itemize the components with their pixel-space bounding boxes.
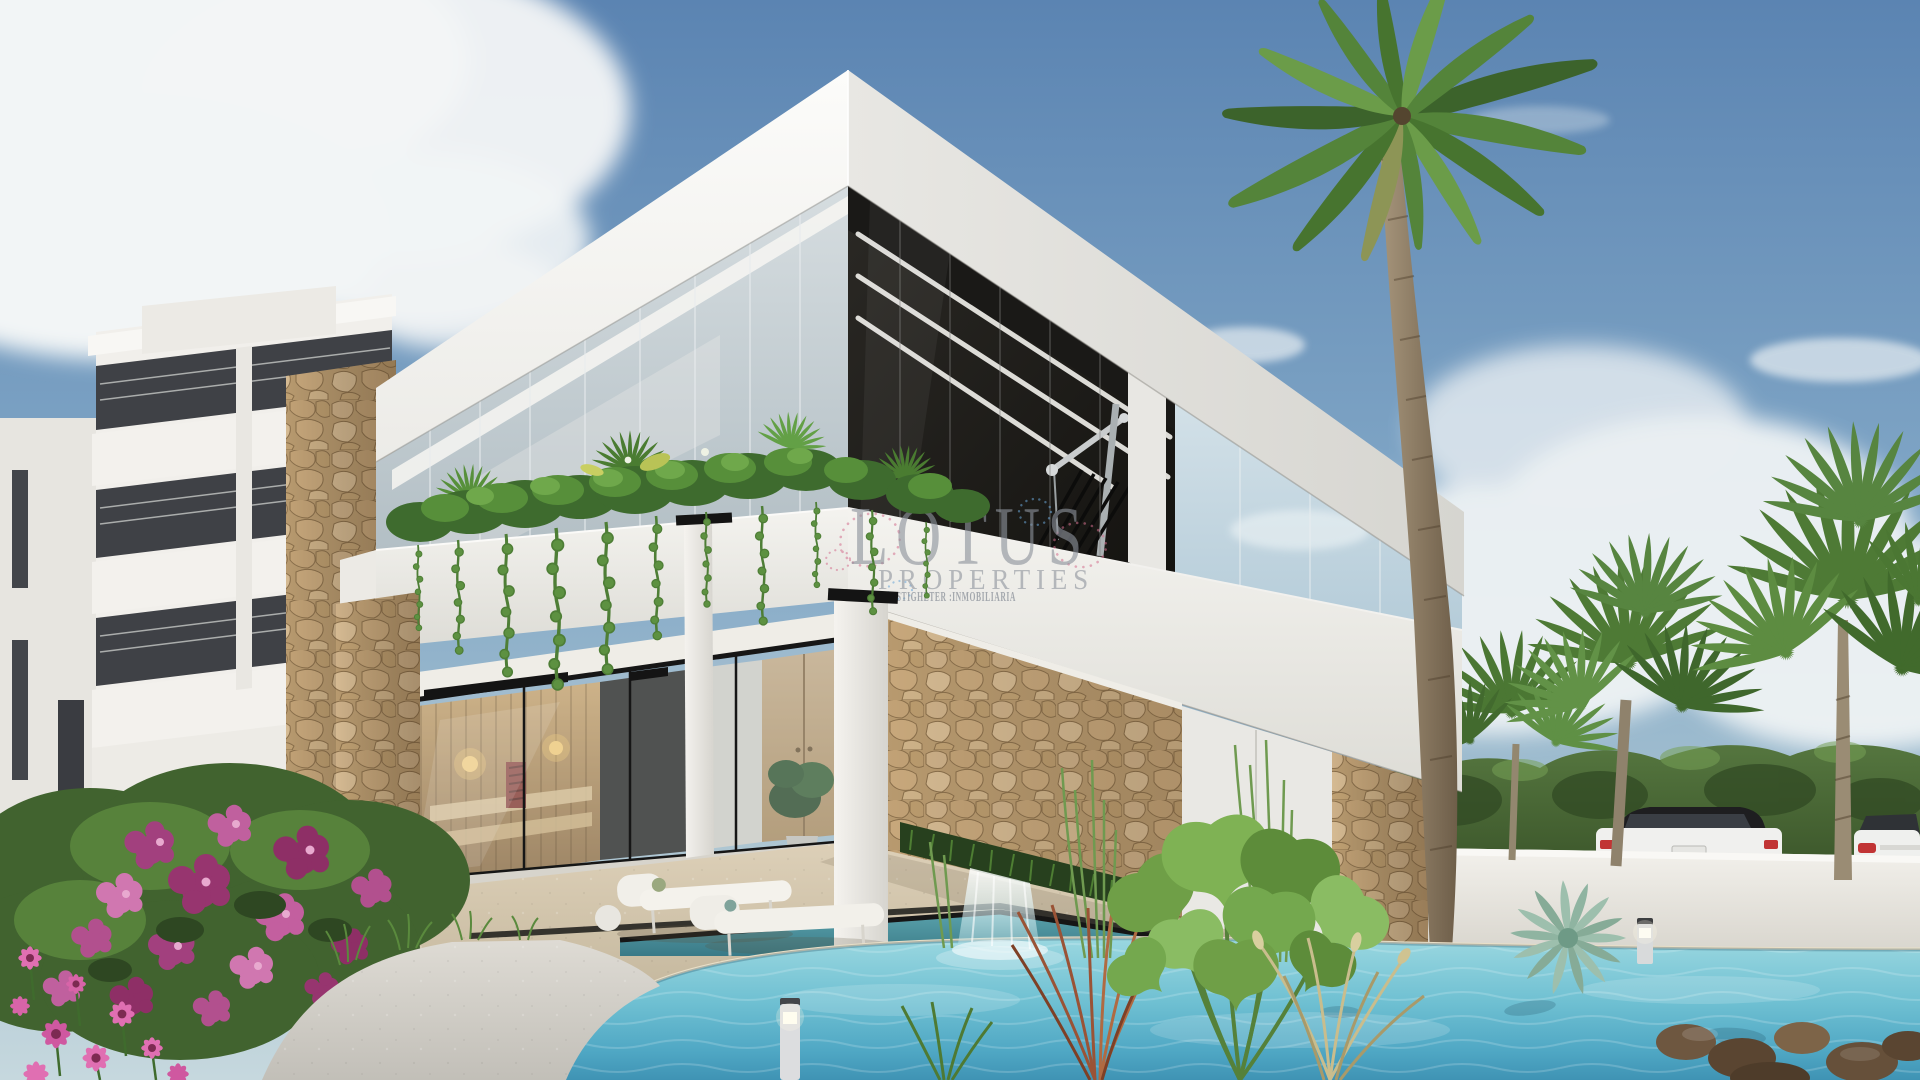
property-render-image: LOTUS PROPERTIES FASTIGHETER :INMOBILIAR… [0, 0, 1920, 1080]
column-front-left [684, 518, 714, 858]
watermark-tagline: FASTIGHETER :INMOBILIARIA [886, 590, 1016, 605]
bollard-light-tall [776, 998, 804, 1080]
side-table [595, 905, 621, 931]
